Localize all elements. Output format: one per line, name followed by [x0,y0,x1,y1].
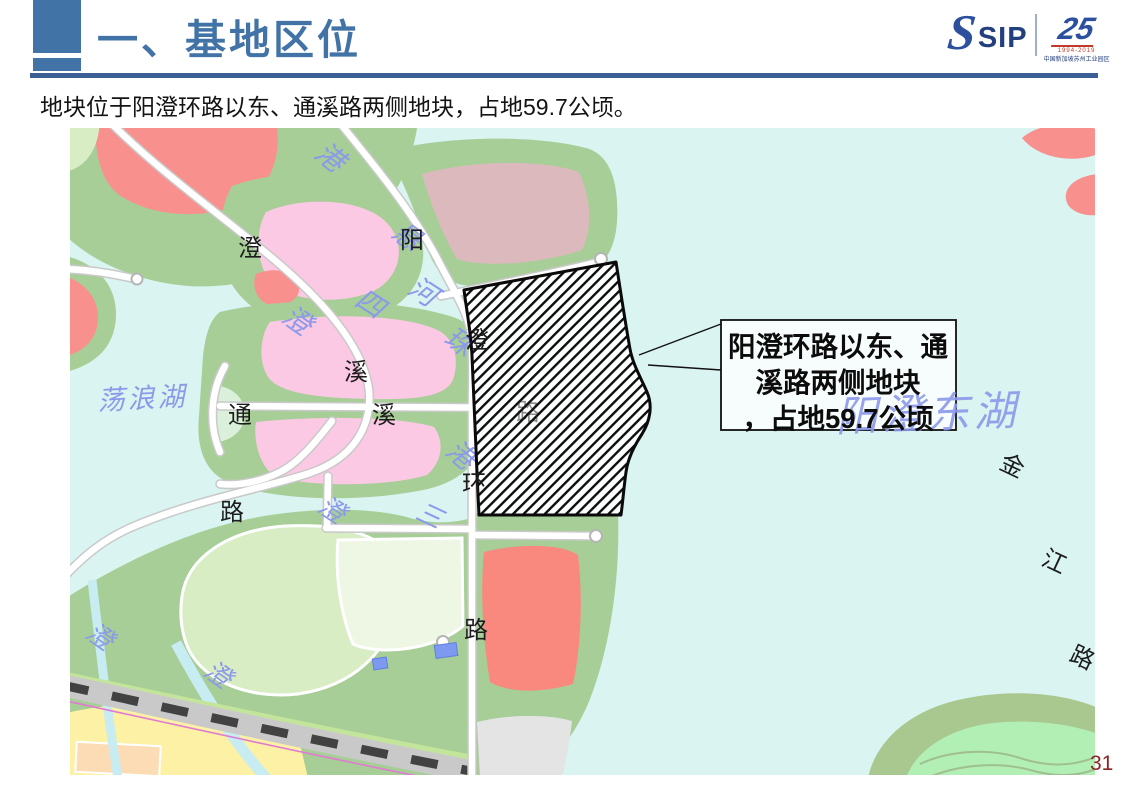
map-label-road: 路 [464,617,488,644]
header-underline [30,73,1098,78]
presentation-slide: 一、基地区位 S SIP 25 1994-2019 中国新加坡苏州工业园区 地块… [0,0,1123,794]
road-south-horizontal [326,528,472,529]
anniversary-logo: 25 1994-2019 中国新加坡苏州工业园区 [1044,14,1110,63]
logo-divider [1035,14,1037,56]
map-label-road: 澄 [465,327,489,354]
map-label-road: 溪 [344,359,368,386]
building-blue-large [434,643,458,659]
callout-line-3: ，占地59.7公顷 [742,403,933,434]
anniversary-25-icon: 25 [1051,14,1102,47]
site-location-map: 港悬河四珠澄荡浪湖港澄三澄澄澄阳溪通溪路路金江路 路澄环 阳澄东湖 阳澄环路以东… [70,128,1095,775]
sip-logo-text: SIP [978,22,1028,55]
page-number: 31 [1090,752,1113,776]
map-label-road: 澄 [238,235,262,262]
callout-text: 阳澄环路以东、通 溪路两侧地块 ，占地59.7公顷 [728,331,948,434]
map-label-road: 通 [228,402,252,429]
map-label-road: 溪 [372,402,396,429]
callout-line-2: 溪路两侧地块 [756,367,921,398]
anniversary-org: 中国新加坡苏州工业园区 [1044,54,1110,63]
road-end-circle [590,530,602,542]
map-label-water: 荡浪湖 [97,381,189,416]
sip-logo: S SIP 25 1994-2019 中国新加坡苏州工业园区 [948,6,1110,68]
map-label-road: 路 [220,499,244,526]
header-accent-bar [33,58,81,71]
building-blue-small [372,657,387,670]
map-label-road: 阳 [400,227,424,254]
parcel-gray [477,716,572,775]
road-south-stub [474,535,590,536]
map-label-road: 路 [516,399,540,426]
parcel-red [482,546,581,691]
slide-subtitle: 地块位于阳澄环路以东、通溪路两侧地块，占地59.7公顷。 [40,88,637,122]
slide-title: 一、基地区位 [97,6,361,66]
header-accent-square [33,0,81,53]
road-end-circle [132,274,143,285]
sip-logo-swoosh-icon: S [945,6,978,58]
callout-line-1: 阳澄环路以东、通 [728,331,948,362]
parcel-pale-green [337,538,463,650]
map-label-road: 环 [462,471,486,498]
